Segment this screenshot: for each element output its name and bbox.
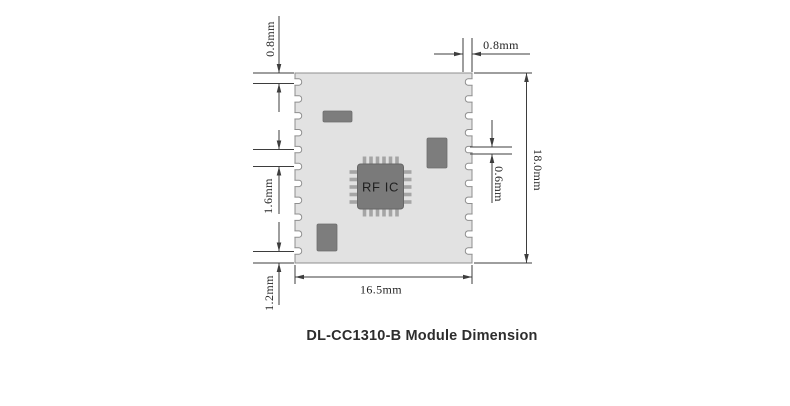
dim-chain-left: 0.8mm 1.6mm 1.2mm [253, 16, 294, 311]
chip-pin [369, 157, 373, 165]
castellation-notch [294, 231, 301, 237]
dimension-arrowhead [472, 52, 481, 57]
chip-pin [404, 193, 412, 197]
dimension-arrowhead [524, 254, 529, 263]
dimension-arrowhead [524, 73, 529, 82]
dim-module-width-label: 16.5mm [360, 283, 402, 297]
module-dimension-page: RF IC 0.8mm 1.6mm 1.2mm 0.8mm [0, 0, 790, 406]
dimension-arrowhead [277, 141, 282, 150]
module-dimension-diagram: RF IC 0.8mm 1.6mm 1.2mm 0.8mm [0, 0, 790, 406]
chip-pin [363, 209, 367, 217]
castellation-notch [294, 163, 301, 169]
castellation-notch [465, 163, 472, 169]
castellation-notch [465, 96, 472, 102]
chip-pin [382, 209, 386, 217]
castellation-notch [294, 130, 301, 136]
component-top-left [323, 111, 352, 122]
chip-pin [389, 209, 393, 217]
chip-pin [395, 157, 399, 165]
chip-pin [404, 200, 412, 204]
chip-pin [376, 209, 380, 217]
castellation-notch [465, 231, 472, 237]
chip-pin [363, 157, 367, 165]
castellation-notch [294, 197, 301, 203]
chip-pin [350, 185, 358, 189]
castellation-notch [294, 79, 301, 85]
dim-module-height-label: 18.0mm [531, 149, 545, 191]
chip-pin [395, 209, 399, 217]
dim-pad-pitch-label: 1.6mm [261, 178, 275, 214]
chip-pin [350, 193, 358, 197]
dimension-arrowhead [277, 84, 282, 93]
dim-top-margin-label: 0.8mm [263, 21, 277, 57]
dim-pad-width-label: 0.6mm [492, 166, 506, 202]
chip-pin [350, 178, 358, 182]
dimension-arrowhead [295, 275, 304, 280]
castellation-notch [465, 79, 472, 85]
dim-edge-depth: 0.8mm [434, 38, 530, 72]
chip-pin [404, 170, 412, 174]
diagram-caption: DL-CC1310-B Module Dimension [306, 328, 537, 344]
dim-bottom-margin-label: 1.2mm [262, 275, 276, 311]
component-bottom-left [317, 224, 337, 251]
dimension-arrowhead [463, 275, 472, 280]
castellation-notch [294, 146, 301, 152]
castellation-notch [465, 113, 472, 119]
dimension-arrowhead [277, 263, 282, 272]
castellation-notch [465, 197, 472, 203]
component-right [427, 138, 447, 168]
chip-pin [404, 185, 412, 189]
chip-label: RF IC [362, 180, 399, 195]
castellation-notch [465, 180, 472, 186]
chip-pin [382, 157, 386, 165]
dimension-arrowhead [277, 64, 282, 73]
castellation-notch [294, 248, 301, 254]
dim-module-width: 16.5mm [295, 265, 472, 297]
castellation-notch [294, 113, 301, 119]
dim-edge-depth-label: 0.8mm [483, 38, 519, 52]
chip-pin [369, 209, 373, 217]
castellation-notch [465, 248, 472, 254]
dim-module-height: 18.0mm [474, 73, 545, 263]
dimension-arrowhead [490, 138, 495, 147]
castellation-notch [465, 130, 472, 136]
dimension-arrowhead [454, 52, 463, 57]
castellation-notch [465, 214, 472, 220]
dimension-arrowhead [277, 243, 282, 252]
chip-pin [350, 170, 358, 174]
castellation-notch [294, 96, 301, 102]
rf-ic-chip: RF IC [350, 157, 412, 217]
chip-pin [350, 200, 358, 204]
castellation-notch [294, 214, 301, 220]
chip-pin [389, 157, 393, 165]
dimension-arrowhead [490, 154, 495, 163]
chip-pin [376, 157, 380, 165]
castellation-notch [294, 180, 301, 186]
chip-pin [404, 178, 412, 182]
dimension-arrowhead [277, 167, 282, 176]
